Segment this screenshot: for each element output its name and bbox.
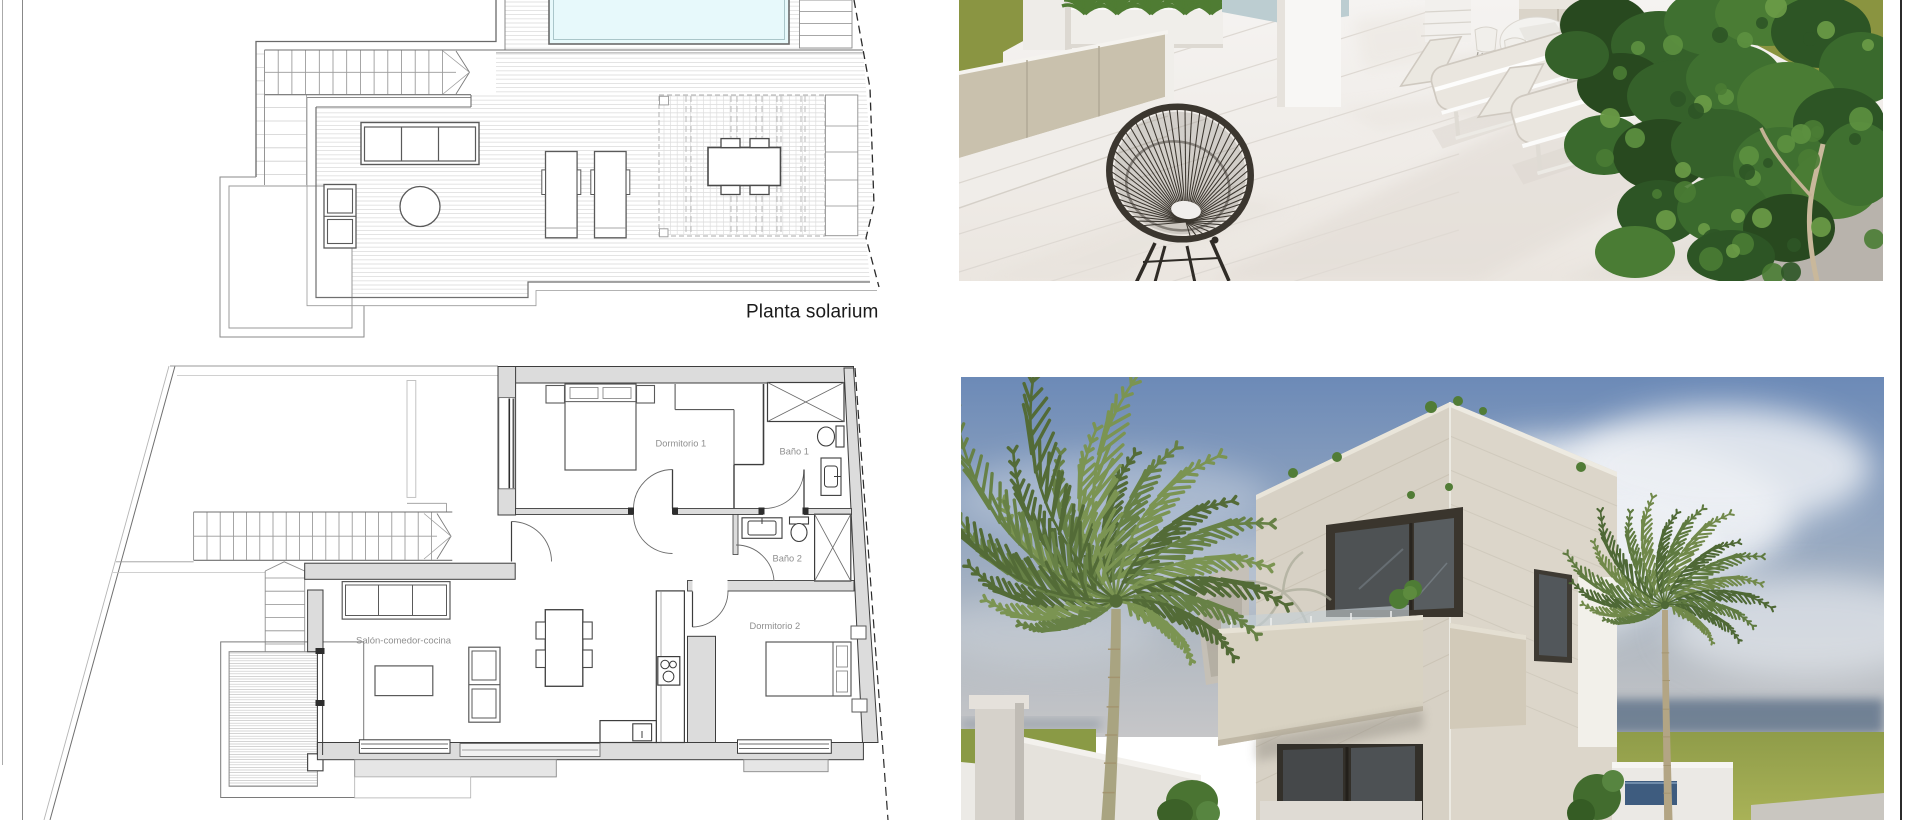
svg-text:Dormitorio 2: Dormitorio 2 bbox=[750, 621, 801, 631]
svg-text:Baño 2: Baño 2 bbox=[773, 554, 802, 564]
svg-text:Salón-comedor-cocina: Salón-comedor-cocina bbox=[356, 636, 452, 647]
svg-text:Baño 1: Baño 1 bbox=[780, 447, 809, 457]
svg-text:Dormitorio 1: Dormitorio 1 bbox=[656, 439, 707, 449]
